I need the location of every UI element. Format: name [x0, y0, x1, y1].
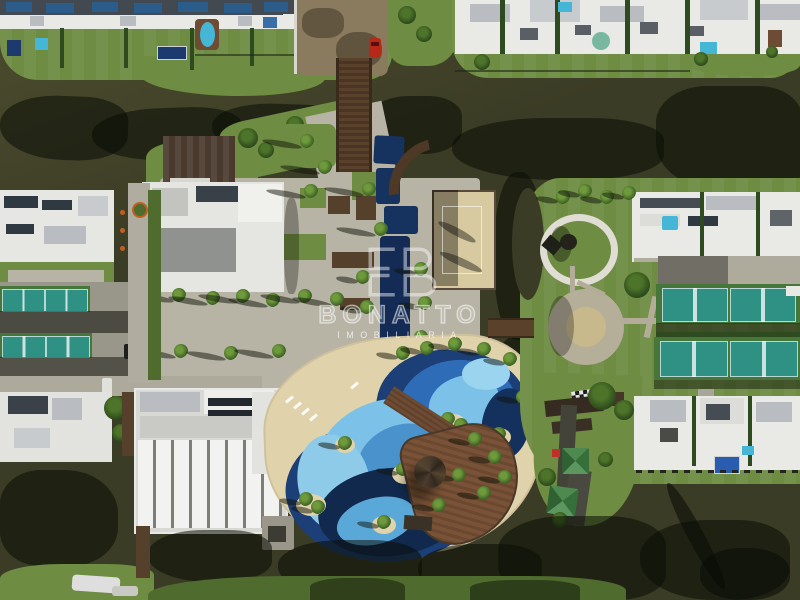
bank-shadow [470, 580, 580, 600]
play-equipment-red [552, 449, 560, 457]
red-car-windshield [371, 42, 379, 46]
sw-building-gray [14, 428, 50, 448]
hedge [748, 396, 752, 466]
roof-detail [120, 16, 136, 26]
townhouse-flat-roofs [0, 15, 300, 29]
path-planting-strip [148, 190, 161, 380]
condo-pool [662, 216, 678, 230]
water-shadow [452, 118, 664, 180]
palm-tree [377, 515, 391, 529]
apartment-solar [42, 200, 72, 210]
condo-roof-dark [640, 198, 700, 208]
hedge [700, 192, 704, 258]
solar-panel [46, 3, 74, 13]
brand-name: BONATTO [300, 302, 500, 328]
roof-detail [30, 16, 44, 26]
round-plunge-pool [590, 30, 612, 52]
tree [238, 128, 258, 148]
water-shadow [148, 530, 272, 582]
apartment-roof-gray [44, 226, 86, 244]
roof-terrace [520, 28, 538, 40]
tennis-court [45, 289, 88, 312]
palm-tree [477, 342, 491, 356]
hedge [756, 192, 760, 258]
palm-tree [498, 470, 512, 484]
roof-patch [760, 4, 800, 20]
apartment-solar [6, 224, 34, 234]
se-roof-gray [650, 400, 686, 422]
deck-square [328, 196, 350, 214]
brand-logo-icon [355, 244, 445, 300]
bank-shadow [310, 578, 405, 600]
flower-planter [120, 246, 125, 251]
spiral-center [560, 234, 577, 250]
tennis-court [46, 336, 90, 358]
tree [474, 54, 490, 70]
fence-line [455, 70, 690, 72]
palm-tree [362, 182, 376, 196]
hedge [250, 28, 254, 66]
hedge [124, 28, 128, 68]
solar-panel [134, 3, 162, 13]
dock-sw [136, 526, 150, 578]
palm-tree [432, 498, 446, 512]
palm-tree [622, 186, 636, 200]
pergola [768, 30, 782, 47]
hedge [500, 0, 505, 54]
palm-tree [300, 134, 314, 148]
building-shadow [284, 198, 299, 294]
tennis-court [660, 341, 728, 377]
palm-tree [374, 222, 388, 236]
tree [598, 452, 613, 467]
water-inlet [512, 188, 544, 300]
palm-tree [304, 184, 318, 198]
roof-terrace [575, 25, 591, 35]
deck-square [356, 196, 376, 220]
palm-tree [452, 468, 466, 482]
roof-patch [700, 0, 748, 20]
solar-panel [224, 3, 252, 13]
palm-tree [488, 450, 502, 464]
tennis-court [2, 336, 46, 358]
parking-stain [302, 8, 344, 38]
tennis-court [730, 341, 798, 377]
canopy-tent [562, 448, 589, 474]
flower-planter [120, 210, 125, 215]
tennis-court [662, 288, 728, 322]
glass-building-roofdeck [140, 392, 200, 412]
tennis-court [2, 289, 45, 312]
wooden-footbridge [336, 58, 372, 172]
tree [416, 26, 432, 42]
dock-small-inner [268, 526, 286, 542]
tree [624, 272, 650, 298]
hedge [692, 396, 696, 466]
solar-panel [92, 2, 118, 12]
hedge [190, 28, 194, 70]
court-shadow-band [654, 380, 800, 389]
blue-awning [263, 17, 277, 28]
water-shadow [0, 470, 118, 566]
palm-tree [318, 160, 332, 174]
palm-tree [272, 344, 286, 358]
court-hut [786, 286, 800, 296]
apartment-roof-gray [78, 196, 108, 216]
floating-dock [404, 515, 433, 531]
backyard-pool-rect [558, 2, 572, 12]
palm-tree [224, 346, 238, 360]
hedge [625, 0, 630, 54]
sw-building-solar [8, 396, 48, 414]
condo-terrace [770, 210, 792, 226]
solar-panel [264, 2, 288, 12]
white-boat [112, 586, 138, 596]
shore-fence [636, 470, 800, 473]
roof-detail [238, 16, 252, 26]
hedge [685, 0, 690, 54]
apron-shadow [658, 256, 728, 284]
hedge [755, 0, 760, 54]
tree [588, 382, 616, 410]
thatched-hut [414, 456, 446, 488]
red-car [369, 38, 381, 57]
se-roof-dark [706, 404, 730, 420]
court-shadow-band [0, 311, 148, 333]
se-courtyard [660, 428, 678, 442]
court-shadow-band [656, 323, 800, 332]
roof-patch [600, 6, 644, 22]
palm-tree [338, 436, 352, 450]
water-shadow [656, 86, 800, 190]
water-shadow [640, 520, 790, 600]
hedge [60, 28, 64, 68]
tree [614, 400, 634, 420]
roof-terrace [640, 22, 658, 34]
backyard-pool-oval [200, 22, 215, 47]
palm-tree [468, 432, 482, 446]
sw-building-gray [52, 398, 82, 420]
se-roof-gray [756, 402, 792, 422]
brand-tagline: IMOBILIÁRIA [300, 330, 500, 340]
solar-panel [178, 2, 208, 12]
flowerbed-circle [132, 202, 148, 218]
dock-west [122, 392, 134, 456]
palm-tree [503, 352, 517, 366]
backyard-pool-rect [157, 46, 187, 60]
tree [766, 46, 778, 58]
path [570, 266, 575, 292]
parking-curb [294, 0, 297, 74]
palm-tree [311, 500, 325, 514]
palm-tree [477, 486, 491, 500]
plaza-shadow [548, 296, 574, 356]
roof-terrace [690, 26, 704, 36]
apartment-solar [4, 196, 38, 208]
aerial-photo: BONATTO IMOBILIÁRIA [0, 0, 800, 600]
condo-roof-gray [706, 196, 760, 210]
tree [694, 52, 708, 66]
tree [538, 468, 556, 486]
backyard-pool-rect [35, 38, 48, 50]
fence-line [195, 54, 300, 56]
white-truck [102, 378, 112, 393]
tree [398, 6, 416, 24]
solar-panel [6, 2, 32, 12]
backyard-pool-rect [742, 446, 754, 455]
clubhouse-roof-gray [150, 228, 236, 272]
brown-roof-house [163, 136, 235, 182]
walkway [8, 270, 104, 282]
backyard-pool-rect [7, 40, 21, 56]
flower-planter [120, 228, 125, 233]
watermark: BONATTO IMOBILIÁRIA [300, 244, 500, 340]
